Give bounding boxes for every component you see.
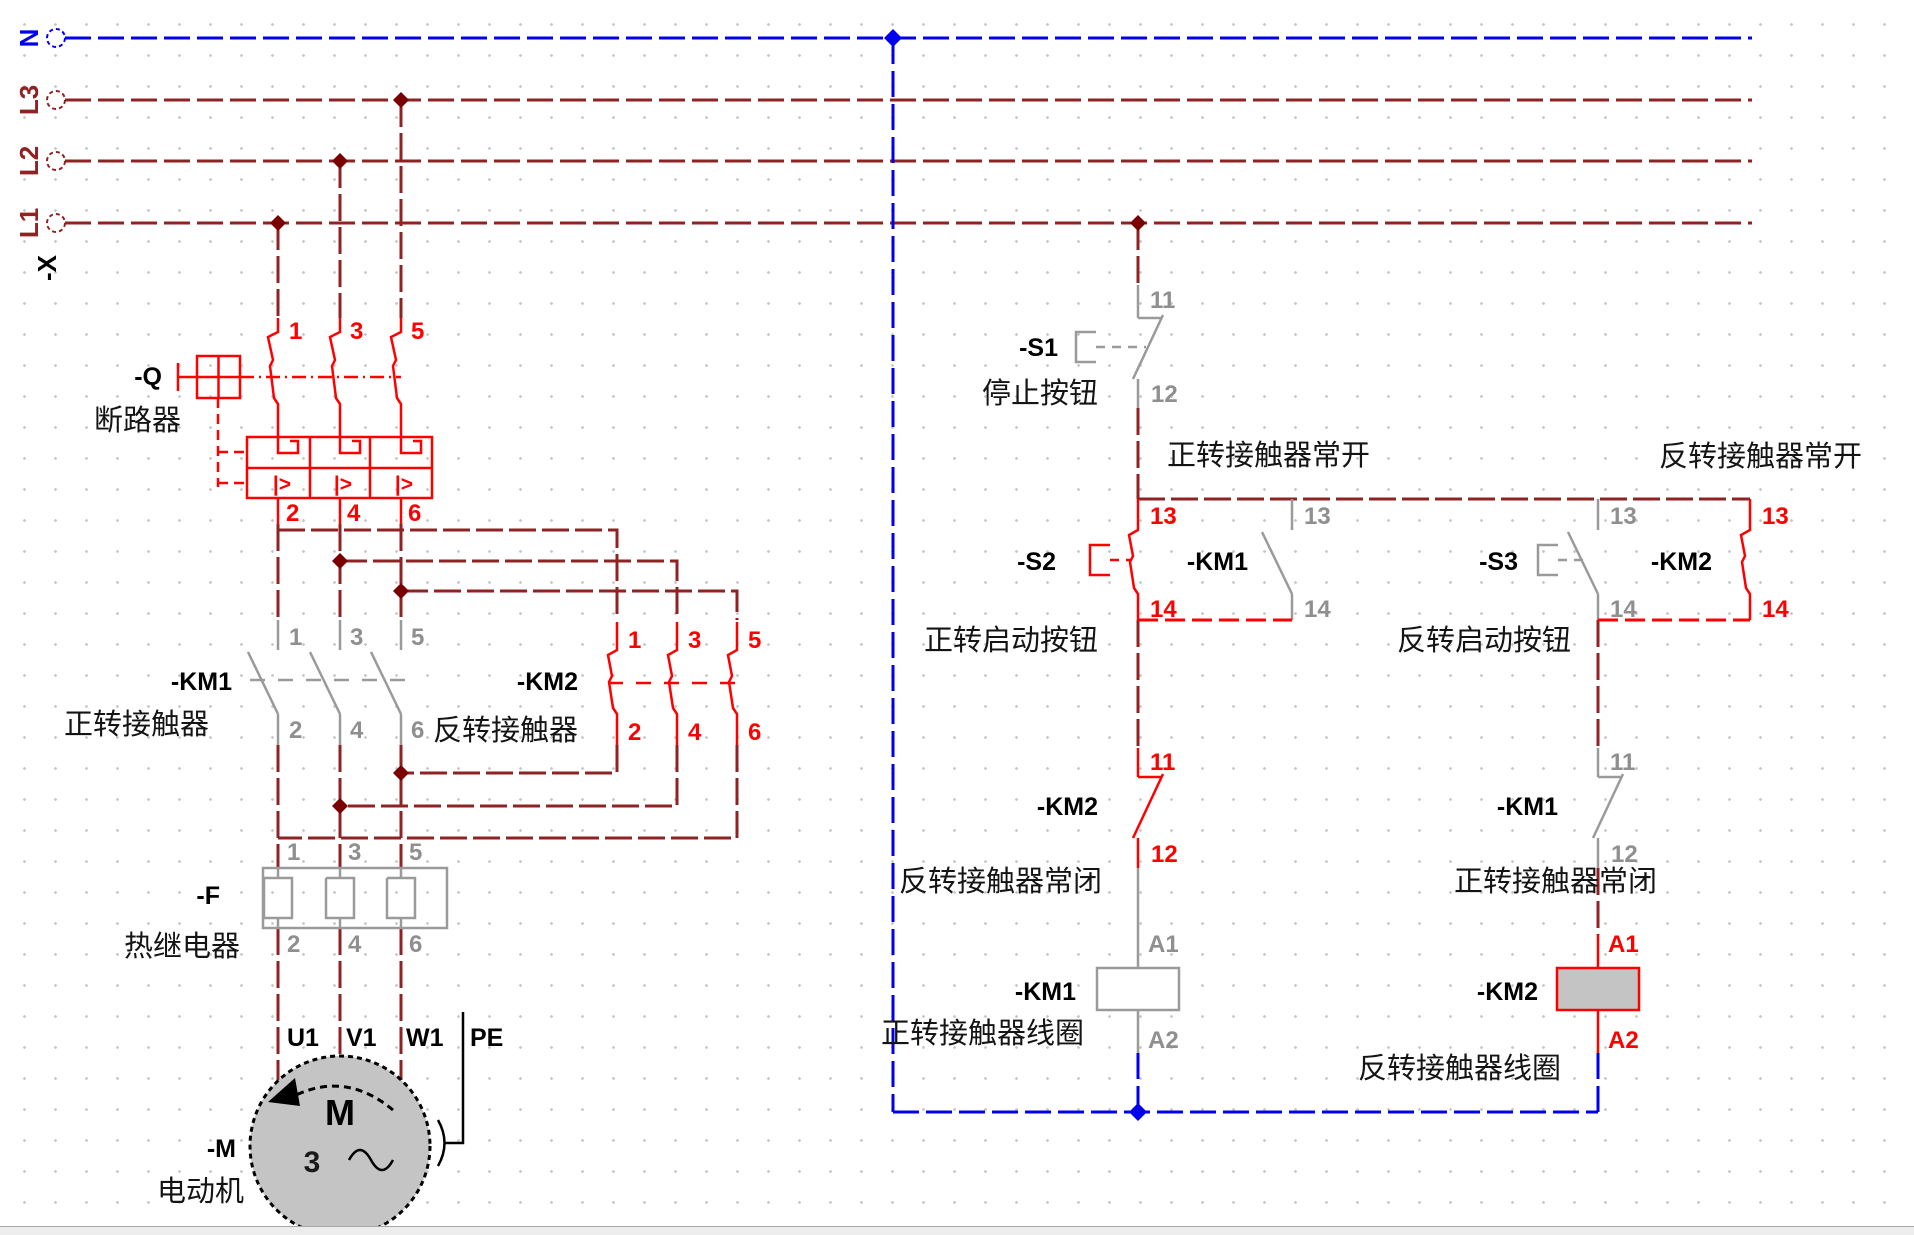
km2-coil-pin: A2 bbox=[1608, 1027, 1639, 1054]
km1-nc-caption: 正转接触器常闭 bbox=[1454, 865, 1657, 898]
km2-no-pin: 14 bbox=[1762, 596, 1789, 623]
km1-no-pin: 14 bbox=[1304, 596, 1331, 623]
breaker-handle-cross bbox=[197, 356, 240, 398]
km1-nc-pin: 11 bbox=[1610, 749, 1635, 776]
junction bbox=[393, 92, 409, 108]
breaker-latch-3 bbox=[401, 437, 421, 453]
km2-main-pin: 3 bbox=[688, 627, 701, 654]
wire-branch-km2-1[interactable] bbox=[278, 530, 617, 620]
km2-coil-tag: -KM2 bbox=[1477, 978, 1538, 1006]
breaker-pin: 5 bbox=[411, 318, 424, 345]
junction bbox=[332, 553, 348, 569]
s1-actuator-icon bbox=[1076, 332, 1096, 362]
junction bbox=[393, 583, 409, 599]
bus-l1-label: L1 bbox=[14, 208, 44, 238]
km1-main-pin: 1 bbox=[289, 624, 302, 651]
s1-pin: 12 bbox=[1151, 381, 1178, 408]
thermal-pin: 2 bbox=[287, 931, 300, 958]
km1-coil-caption: 正转接触器线圈 bbox=[881, 1017, 1084, 1050]
junction bbox=[270, 215, 286, 231]
km1-coil-tag: -KM1 bbox=[1015, 978, 1076, 1006]
thermal-pin: 1 bbox=[287, 839, 300, 866]
km2-coil-caption: 反转接触器线圈 bbox=[1358, 1052, 1561, 1085]
motor-pe-wire[interactable] bbox=[445, 1012, 463, 1143]
breaker-pin: 1 bbox=[289, 318, 302, 345]
km2-nc-pin: 12 bbox=[1151, 841, 1178, 868]
motor-terminal: PE bbox=[470, 1024, 503, 1052]
thermal-pin: 5 bbox=[409, 839, 422, 866]
km1-main-pole-3[interactable] bbox=[371, 620, 401, 745]
thermal-element-1 bbox=[264, 868, 292, 928]
wire-km2-cross-2[interactable] bbox=[401, 745, 617, 773]
bus-n-terminal[interactable] bbox=[47, 29, 65, 47]
s3-pin: 13 bbox=[1610, 503, 1637, 530]
s1-caption: 停止按钮 bbox=[982, 377, 1098, 410]
motor-symbol-letter: M bbox=[325, 1092, 355, 1133]
motor-tag: -M bbox=[207, 1135, 236, 1163]
thermal-tag: -F bbox=[196, 882, 220, 910]
km1-no-tag: -KM1 bbox=[1187, 548, 1248, 576]
km2-main-tag: -KM2 bbox=[517, 668, 578, 696]
km1-main-pin: 3 bbox=[350, 624, 363, 651]
motor-terminal: U1 bbox=[287, 1024, 319, 1052]
junction bbox=[393, 765, 409, 781]
km2-main-contacts[interactable]: 1 3 5 2 4 6 -KM2 反转接触器 bbox=[433, 622, 761, 747]
breaker-pin: 2 bbox=[286, 500, 299, 527]
km1-main-pin: 5 bbox=[411, 624, 424, 651]
breaker-pin: 4 bbox=[347, 500, 361, 527]
junction bbox=[884, 29, 902, 47]
breaker-latch-1 bbox=[278, 437, 298, 453]
s2-tag: -S2 bbox=[1017, 548, 1056, 576]
km2-no-contact[interactable]: 13 14 -KM2 反转接触器常开 bbox=[1598, 440, 1862, 623]
km1-coil-pin: A2 bbox=[1148, 1027, 1179, 1054]
s3-actuator-icon bbox=[1538, 545, 1558, 575]
s3-caption: 反转启动按钮 bbox=[1397, 624, 1571, 657]
bus-l1-terminal[interactable] bbox=[47, 214, 65, 232]
km2-no-pin: 13 bbox=[1762, 503, 1789, 530]
breaker-trip-symbol: |> bbox=[273, 473, 291, 496]
s1-pin: 11 bbox=[1150, 287, 1175, 314]
thermal-element-2 bbox=[326, 868, 354, 928]
s2-pin: 13 bbox=[1150, 503, 1177, 530]
bus-l2-label: L2 bbox=[14, 146, 44, 176]
km1-coil-pin: A1 bbox=[1148, 931, 1179, 958]
s2-caption: 正转启动按钮 bbox=[924, 624, 1098, 657]
motor-terminal: V1 bbox=[346, 1024, 377, 1052]
km1-main-pin: 6 bbox=[411, 717, 424, 744]
bus-l2[interactable] bbox=[47, 152, 1752, 170]
power-wires[interactable] bbox=[278, 100, 1750, 1081]
thermal-pin: 6 bbox=[409, 931, 422, 958]
km1-nc-contact[interactable]: 11 12 -KM1 正转接触器常闭 bbox=[1454, 748, 1657, 898]
motor[interactable]: M 3 U1 V1 W1 PE -M 电动机 bbox=[157, 1012, 503, 1235]
bus-l3[interactable] bbox=[47, 91, 1752, 109]
breaker-pin: 6 bbox=[408, 500, 421, 527]
bus-l2-terminal[interactable] bbox=[47, 152, 65, 170]
thermal-relay[interactable]: 1 3 5 2 4 6 -F 热继电器 bbox=[124, 839, 447, 963]
motor-body[interactable] bbox=[250, 1056, 430, 1235]
km1-nc-tag: -KM1 bbox=[1497, 793, 1558, 821]
wire-km2-cross-6[interactable] bbox=[278, 745, 737, 838]
km2-coil-pin: A1 bbox=[1608, 931, 1639, 958]
thermal-caption: 热继电器 bbox=[124, 930, 240, 963]
breaker-trip-link bbox=[218, 398, 247, 487]
window-bottom-edge bbox=[0, 1226, 1914, 1235]
wire-branch-km2-5[interactable] bbox=[401, 591, 737, 620]
motor-phase-count: 3 bbox=[304, 1146, 321, 1179]
schematic-canvas[interactable]: N L3 L2 L1 -X bbox=[0, 0, 1914, 1235]
km1-main-pin: 2 bbox=[289, 717, 302, 744]
breaker-tag: -Q bbox=[134, 363, 162, 391]
km2-no-path[interactable] bbox=[1741, 499, 1750, 620]
wire-km2-cross-4[interactable] bbox=[340, 745, 677, 806]
km2-main-pin: 2 bbox=[628, 719, 641, 746]
km1-no-pin: 13 bbox=[1304, 503, 1331, 530]
s2-actuator-icon bbox=[1090, 545, 1110, 575]
km2-coil-box[interactable] bbox=[1557, 968, 1639, 1010]
km1-main-pole-2[interactable] bbox=[310, 620, 340, 745]
junction bbox=[1129, 1103, 1147, 1121]
s1-tag: -S1 bbox=[1019, 334, 1058, 362]
breaker-pin: 3 bbox=[350, 318, 363, 345]
thermal-pin: 3 bbox=[348, 839, 361, 866]
bus-l3-label: L3 bbox=[14, 85, 44, 115]
km2-main-pin: 5 bbox=[748, 627, 761, 654]
km1-main-contacts[interactable]: 1 3 5 2 4 6 -KM1 正转接触器 bbox=[64, 620, 424, 745]
motor-caption: 电动机 bbox=[157, 1175, 244, 1208]
junction bbox=[332, 798, 348, 814]
km2-no-caption: 反转接触器常开 bbox=[1659, 440, 1862, 473]
km2-main-pin: 6 bbox=[748, 719, 761, 746]
rev-start-button[interactable]: 13 14 -S3 反转启动按钮 bbox=[1397, 499, 1637, 657]
motor-pe-clamp-icon bbox=[438, 1120, 445, 1166]
km1-nc-pin: 12 bbox=[1611, 841, 1638, 868]
km1-main-caption: 正转接触器 bbox=[64, 708, 209, 741]
bus-l3-terminal[interactable] bbox=[47, 91, 65, 109]
bus-l1[interactable] bbox=[47, 214, 1752, 232]
km2-no-tag: -KM2 bbox=[1651, 548, 1712, 576]
km1-no-caption: 正转接触器常开 bbox=[1167, 439, 1370, 472]
breaker-trip-symbol: |> bbox=[395, 473, 413, 496]
km2-main-pin: 1 bbox=[628, 627, 641, 654]
breaker-caption: 断路器 bbox=[94, 404, 181, 437]
terminal-strip-label: -X bbox=[32, 254, 62, 281]
thermal-pin: 4 bbox=[348, 931, 362, 958]
km2-nc-caption: 反转接触器常闭 bbox=[899, 865, 1102, 898]
km1-main-pin: 4 bbox=[350, 717, 364, 744]
thermal-element-3 bbox=[387, 868, 415, 928]
circuit-breaker[interactable]: |> |> |> 1 3 5 2 4 6 -Q 断路器 bbox=[94, 318, 432, 527]
motor-terminal: W1 bbox=[406, 1024, 444, 1052]
junction bbox=[332, 153, 348, 169]
km2-nc-tag: -KM2 bbox=[1037, 793, 1098, 821]
km1-coil-box[interactable] bbox=[1097, 968, 1179, 1010]
km2-nc-pin: 11 bbox=[1150, 749, 1175, 776]
s3-tag: -S3 bbox=[1479, 548, 1518, 576]
km1-main-tag: -KM1 bbox=[171, 668, 232, 696]
breaker-handle-lead bbox=[178, 363, 197, 391]
breaker-trip-symbol: |> bbox=[334, 473, 352, 496]
junction bbox=[1130, 215, 1146, 231]
breaker-latch-2 bbox=[340, 437, 360, 453]
km2-main-pin: 4 bbox=[688, 719, 702, 746]
km1-no-path[interactable] bbox=[1262, 499, 1292, 620]
km2-nc-contact[interactable]: 11 12 -KM2 反转接触器常闭 bbox=[899, 748, 1178, 898]
stop-button[interactable]: 11 12 -S1 停止按钮 bbox=[982, 285, 1178, 410]
km1-main-pole-1[interactable] bbox=[248, 620, 278, 745]
km2-main-caption: 反转接触器 bbox=[433, 714, 578, 747]
bus-n-label: N bbox=[14, 29, 44, 48]
